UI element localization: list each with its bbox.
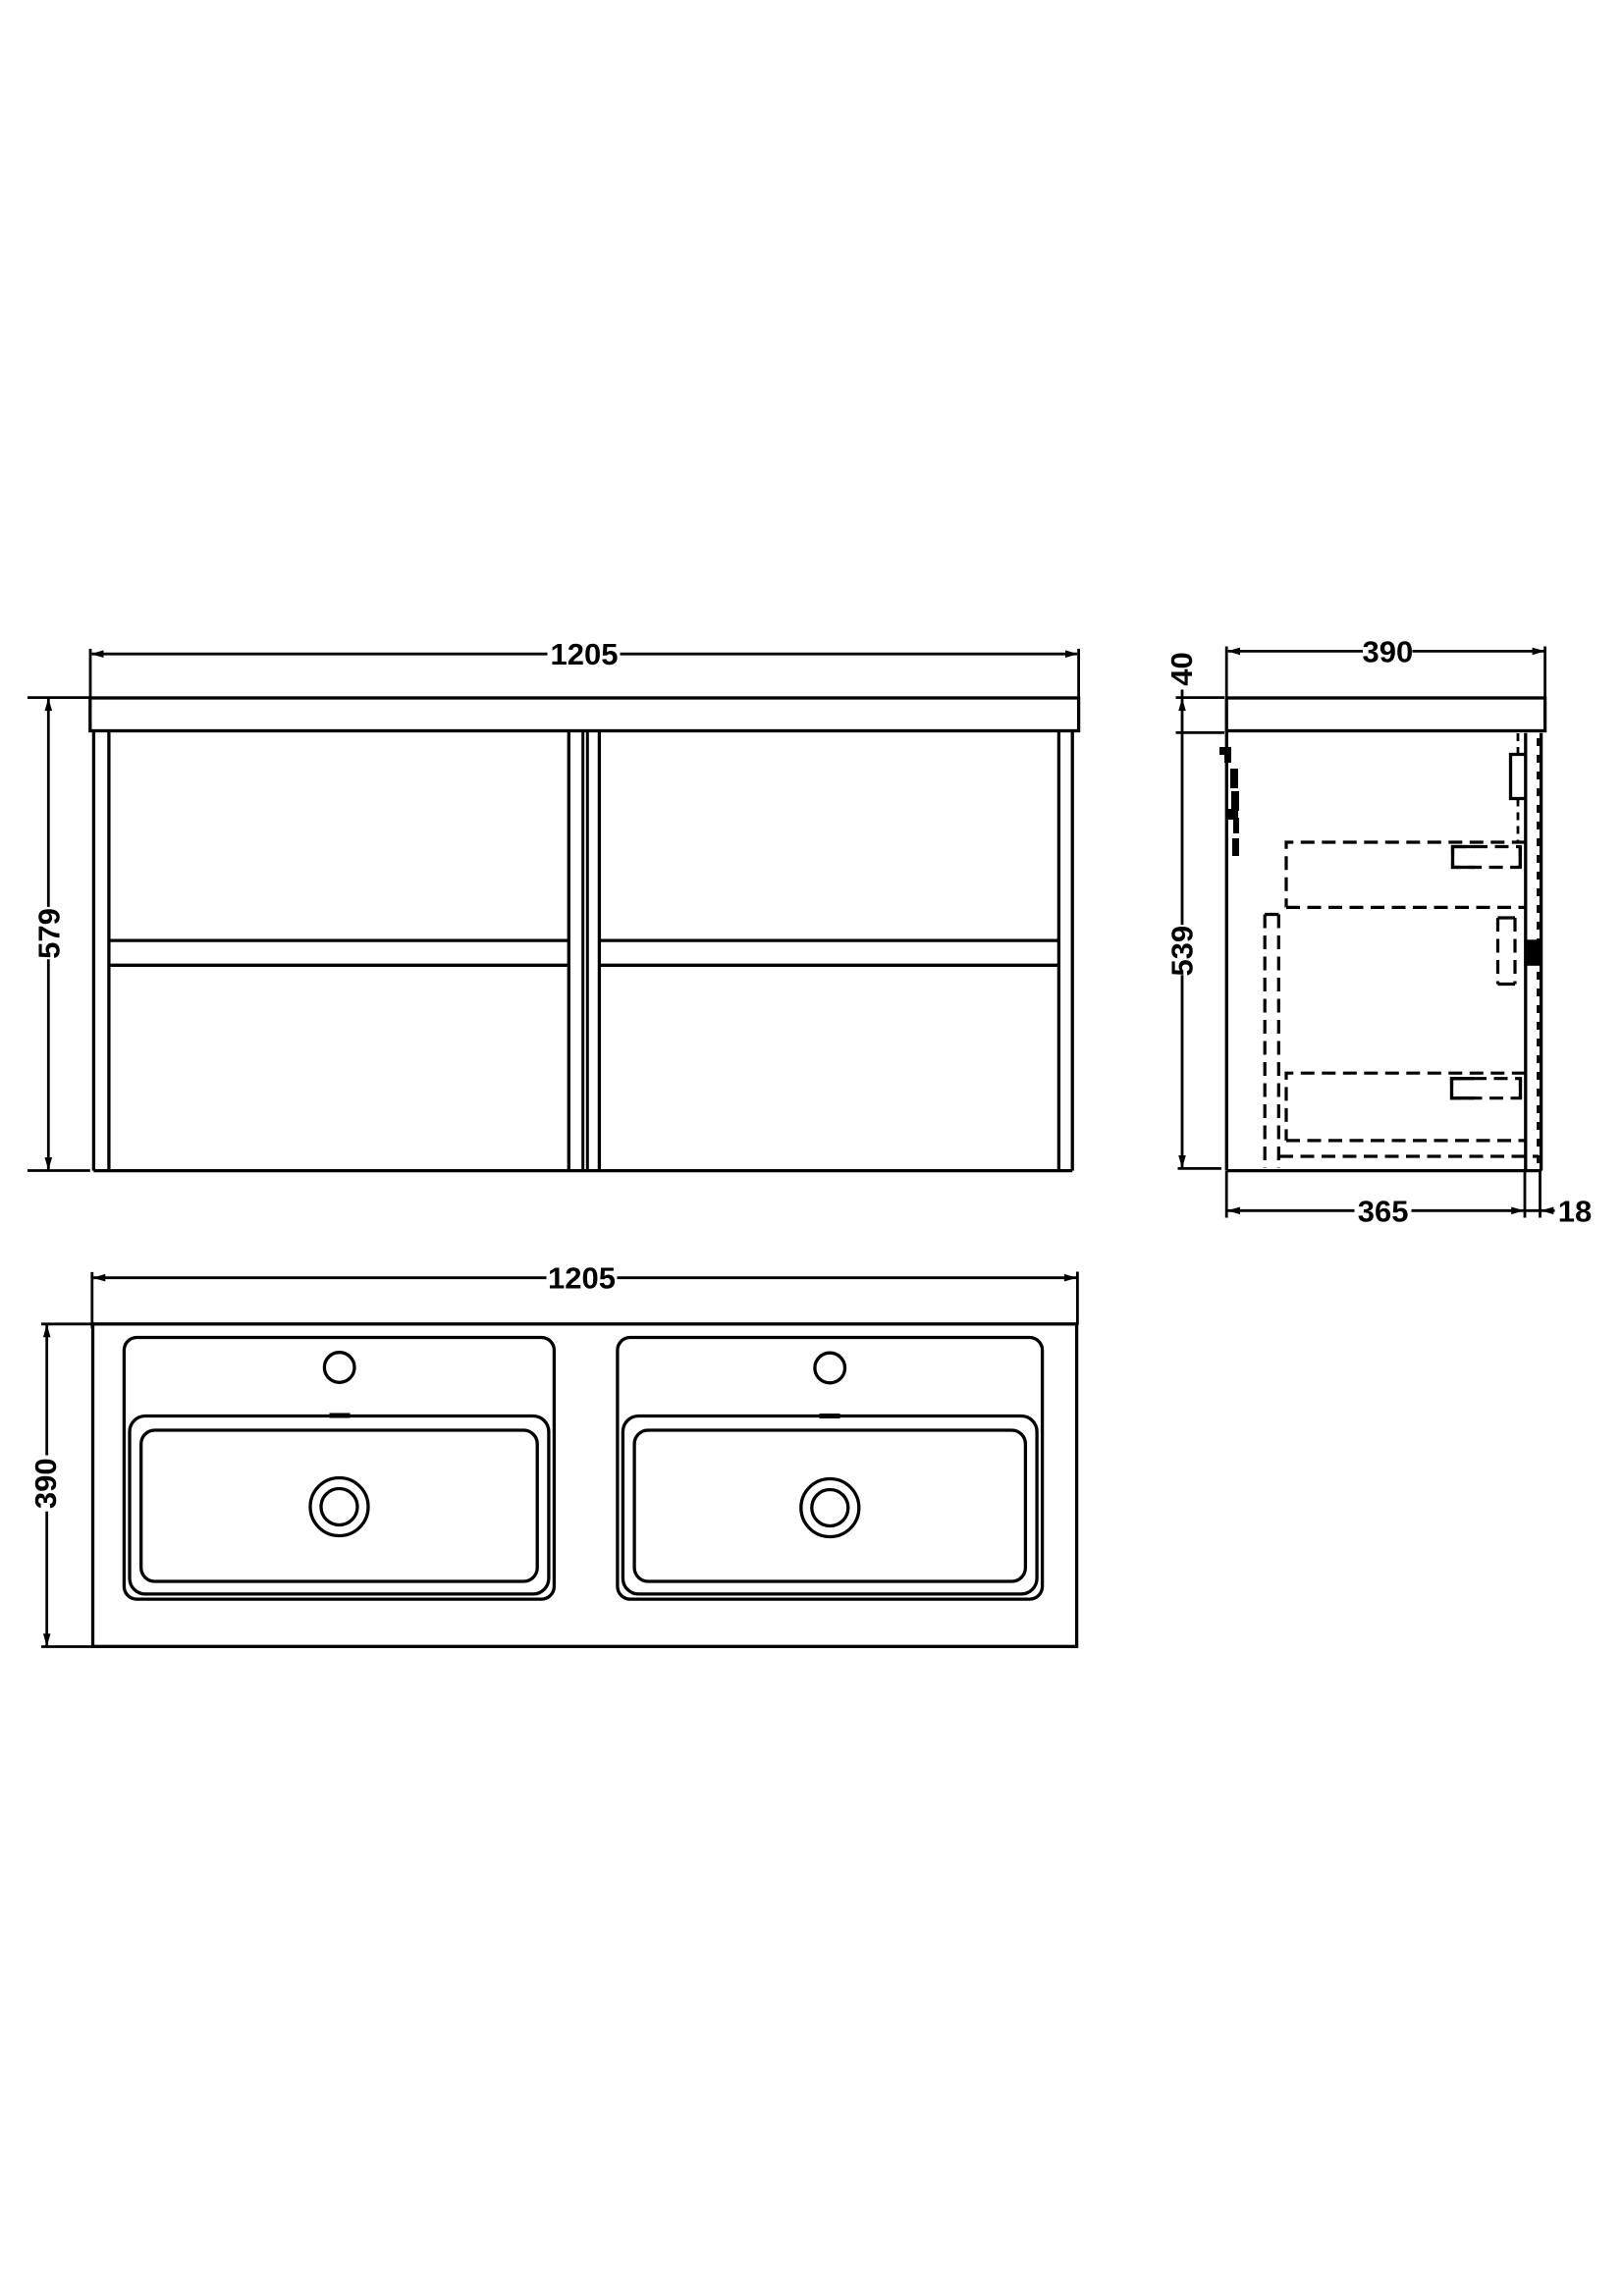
svg-text:390: 390 <box>28 1458 63 1509</box>
svg-text:390: 390 <box>1363 634 1414 668</box>
svg-text:18: 18 <box>1558 1194 1592 1228</box>
svg-text:1205: 1205 <box>548 1261 616 1296</box>
svg-text:539: 539 <box>1164 926 1199 977</box>
svg-text:579: 579 <box>32 908 67 959</box>
svg-text:1205: 1205 <box>551 637 619 671</box>
svg-text:365: 365 <box>1358 1194 1409 1228</box>
svg-text:40: 40 <box>1164 652 1199 685</box>
